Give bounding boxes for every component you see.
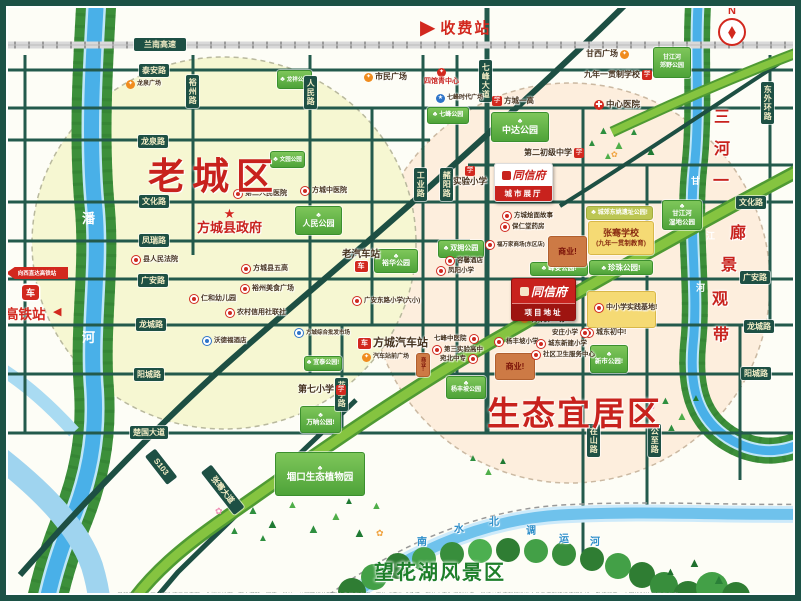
park-label: 甘江河 [672,210,692,218]
park-label: ♣ 城郊东姚遗址公园! [591,209,648,218]
poi-label: 方城烩面故事 [514,212,553,219]
park-label: 商业! [420,357,426,373]
corridor-label-char-1: 河 [714,142,730,158]
tree-icon: ♣ [601,265,608,272]
arrow-right-icon: ▶ [420,18,435,38]
poi-label: 市民广场 [375,73,407,82]
park-label: 湿地公园 [669,219,695,227]
road-label-dongwaihuan-rd: 东外环路 [761,82,774,124]
poi-label: 方城综合批发市场 [306,330,350,336]
park-yangfengpo-park: ♣杨丰坡公园 [446,376,486,399]
poi-label: 福万家商场(东区店) [497,242,545,248]
poi-yangfengpo-primary: 杨丰坡小学 [494,337,539,347]
bdot-icon [202,336,212,346]
plaza-icon: ✦ [362,353,371,362]
poi-diqi-primary: 学第七小学 [298,385,346,395]
poi-label: 安庄小学 [552,329,578,336]
park-shangye-1: 商业! [548,236,587,267]
poi-label: 凤阳小学 [448,267,474,274]
poi-label: 城东初中! [596,329,626,337]
park-label: 杨丰坡公园 [451,387,481,395]
park-label: 甘江河 [663,55,681,63]
dot-icon [436,266,446,276]
poi-zonghe-market: 方城综合批发市场 [294,328,350,338]
road-label-renmin-rd: 人民路 [304,76,317,109]
poi-label: 汽车站前广场 [373,354,409,361]
redplaza-icon: ✦ [437,68,446,77]
poi-label: 老汽车站 [342,250,380,260]
poi-label: 宛北中专 [440,355,466,362]
poi-renmin-court: 县人民法院 [131,255,178,265]
poi-chengdong-middle: 城东初中! [584,328,626,338]
canal-label-char-2: 北 [489,518,499,528]
poi-guangan-primary: 广安东路小学(六小) [352,296,420,306]
corridor-label-char-5: 观 [712,292,728,308]
tree-icon: ♣ [542,265,549,272]
tree-icon: ▲ [712,572,726,586]
corridor-label-char-0: 三 [714,110,730,126]
poi-label: 仁和幼儿园 [201,295,236,303]
dot-icon [536,339,546,349]
poi-label: 杨丰坡小学 [506,338,539,345]
corridor-label-char-6: 带 [713,328,729,344]
poi-label: 方城汽车站 [373,337,428,349]
poi-label: 方城一高 [504,97,534,105]
park-zhangqian-school: 张骞学校(九年一贯制教育) [588,221,654,255]
poi-label: 七峰时代广场 [447,95,483,102]
dot-icon [594,303,604,313]
tree-icon: ♣ [591,209,598,216]
tree-icon: ▲ [353,526,366,539]
poi-label: 县人民法院 [143,256,178,264]
dot-icon [131,255,141,265]
ganjiang-river-label-char-2: 河 [696,284,705,293]
plaza-icon: ✦ [620,50,629,59]
poi-bus-front-plaza: ✦汽车站前广场 [362,353,409,362]
hsr-station-label: 高铁站 [5,303,46,323]
tree-icon: ▲ [498,457,508,467]
tree-icon: ♣ [280,76,287,83]
poi-zhongxin-hospital: ✚中心医院 [594,100,640,110]
park-label: 人民公园 [303,219,335,229]
tree-icon: ▲ [344,497,354,507]
poi-fuwanjia-mall: 福万家商场(东区店) [485,240,545,250]
park-qifeng-park: ♣ 七峰公园 [427,107,469,124]
dot-icon [352,296,362,306]
park-label: 郊野公园 [660,63,684,71]
brand-seal-icon [502,171,511,180]
park-yuhua-park: ♣裕华公园 [374,249,418,273]
showroom-label: 城市展厅 [495,186,552,201]
poi-fangcheng-bus-station: 车方城汽车站 [358,337,428,349]
poi-label: 城东新建小学 [548,340,587,347]
tree-icon: ♣ [318,412,323,419]
park-label: 裕华公园 [382,260,410,269]
road-label-taian-rd: 泰安路 [139,64,169,77]
dot-icon [445,256,455,266]
park-label: 堌口生态植物园 [287,472,354,484]
project-site-marker: 同信府 项目地址 [511,278,576,321]
dot-icon [300,186,310,196]
school-icon: 学 [465,166,475,176]
ganjiang-river-label-char-0: 甘 [691,177,700,186]
poi-ganxi-plaza: ✦甘西广场 [586,50,629,59]
canal-label-char-1: 水 [454,525,464,535]
dot-icon [580,328,590,338]
tree-icon: ▲ [287,500,298,511]
tree-icon: ▲ [258,534,268,544]
flower-icon: ✿ [611,151,618,159]
park-zhongda-park: ♣中达公园 [491,112,549,142]
brand-name: 同信府 [513,167,546,183]
corridor-label-char-3: 廊 [730,226,746,242]
site-label: 项目地址 [512,304,575,320]
canal-label-char-0: 南 [417,538,427,548]
poi-label: 中小学实践基地! [606,304,657,312]
dot-icon [502,211,512,221]
eco-zone-title: 生态宜居区 [487,387,662,435]
poi-wanbei-zhongzhuan: 宛北中专 [440,354,478,364]
tree-icon: ▲ [629,128,639,138]
poi-label: 方城县五高 [253,265,288,273]
poi-label: 第三实验高中 [444,346,483,353]
poi-label: 七峰中医院 [434,335,467,342]
park-label: ♣ 珍珠公园! [601,263,640,272]
poi-anzhuang-primary: 安庄小学 [552,328,590,338]
poi-label: 第二初级中学 [524,149,572,158]
park-label: 中达公园 [502,125,538,136]
poi-label: 社区卫生服务中心 [543,351,595,358]
road-label-yangcheng-rd-l: 阳城路 [134,368,164,381]
road-label-fengrui-rd: 凤瑞路 [139,234,169,247]
road-label-guangan-rd-l: 广安路 [138,274,168,287]
road-label-s103: S103 [145,449,178,485]
poi-label: 四馆青中心 [424,78,459,86]
flower-icon: ✿ [215,507,223,516]
tree-icon: ▲ [665,567,676,578]
dot-icon [531,350,541,360]
road-label-wenhua-rd-r: 文化路 [736,196,766,209]
canal-label-char-3: 调 [526,527,536,537]
tree-icon: ▲ [691,394,701,404]
poi-longquan-plaza: ✦龙泉广场 [126,80,161,89]
park-yizhi-park: ♣ 城郊东姚遗址公园! [586,206,653,220]
park-zhenzhu-park: ♣ 珍珠公园! [589,260,653,275]
brand-row: 同信府 [512,279,575,304]
poi-wugao: 方城县五高 [241,264,288,274]
arrow-left-icon: ◀ [53,305,61,318]
poi-rural-credit: 农村信用社联社 [225,308,286,318]
park-yitai-park: ♣ 宜泰公园! [304,356,342,371]
road-label-guangan-rd-r: 广安路 [740,271,770,284]
blue-icon: ★ [436,94,445,103]
poi-label: 九年一贯制学校 [584,71,640,80]
dot-icon [469,334,479,344]
tree-icon: ▲ [483,467,494,478]
poi-fangcheng-yigao: 学方城一高 [492,96,534,106]
park-label: ♣ 宜泰公园! [307,359,340,368]
bus-icon: 车 [358,338,371,349]
poi-qifeng-times-plaza: ★七峰时代广场 [436,94,483,103]
school-icon: 学 [492,96,502,106]
poi-rongxin-hotel: 容馨酒店 [445,256,483,266]
tree-icon: ▲ [676,410,688,422]
canal-label-char-4: 运 [559,535,569,545]
road-label-lannan-expwy: 兰南高速 [134,38,186,51]
park-shangye-3: 商业! [416,353,430,377]
poi-label: 甘西广场 [586,50,618,59]
compass-ring-icon: ◆ [718,18,746,46]
park-renmin-park: ♣人民公园 [295,206,342,235]
poi-huimian-story: 方城烩面故事 [502,211,553,221]
corridor-label-char-4: 景 [721,258,737,274]
park-label: 张骞学校 [603,228,639,239]
poi-practice-base: 中小学实践基地! [594,303,657,313]
hsr-direction-banner: 向西直达高铁站 [6,267,68,279]
project-showroom-marker: 同信府 城市展厅 [494,163,553,202]
dot-icon [189,294,199,304]
poi-label: 方城县政府 [197,221,262,235]
poi-jiunian-school: 学九年一贯制学校 [584,70,652,80]
poi-fangcheng-zhongyi: 方城中医院 [300,186,347,196]
tree-icon: ▲ [468,454,478,464]
dot-icon [500,222,510,232]
park-label: (九年一贯制教育) [596,240,646,248]
park-ganjianghe-wetland-park: ♣甘江河湿地公园 [662,200,702,230]
tree-icon: ▲ [371,501,382,512]
tree-icon: ♣ [307,359,314,366]
brand-row: 同信府 [495,164,552,186]
poi-label: 实验小学 [453,177,487,186]
dot-icon [240,284,250,294]
road-label-chuguo-ave: 楚国大道 [130,426,168,439]
poi-label: 保仁堂药房 [512,223,545,230]
compass-needle-icon: ◆ [728,23,736,42]
brand-seal-icon [520,287,529,296]
school-icon: 学 [336,385,346,395]
compass: N ◆ [714,5,750,46]
toll-station-callout: ▶ 收费站 [420,17,491,38]
brand-name: 同信府 [531,283,567,300]
park-xinshi-park: ♣新市公园! [590,345,628,373]
poi-label: 第七小学 [298,385,334,395]
scenic-area-title: 望花湖风景区 [374,556,506,585]
poi-baorentang: 保仁堂药房 [500,222,545,232]
pan-river-label-char-0: 潘 [82,212,95,225]
tree-icon: ♣ [318,465,323,472]
dot-icon [494,337,504,347]
tree-icon: ▲ [598,126,609,137]
poi-gov: ★方城县政府 [197,207,262,235]
park-label: ♣ 七峰公园 [433,111,464,120]
tree-icon: ▲ [666,423,677,434]
tree-icon: ♣ [433,111,440,118]
road-label-yuzhou-rd: 裕州路 [186,75,199,108]
tree-icon: ▲ [688,556,701,569]
poi-wodefu-hotel: 沃德福酒店 [202,336,247,346]
school-icon: 学 [574,148,584,158]
hsr-banner-label: 向西直达高铁站 [18,269,57,277]
poi-label: 农村信用社联社 [237,309,286,317]
old-town-zone-title: 老城区 [148,146,280,200]
tree-icon: ♣ [444,245,451,252]
road-label-longcheng-rd-r: 龙城路 [744,320,774,333]
plaza-icon: ✦ [126,80,135,89]
canal-label-char-5: 河 [590,538,600,548]
poi-old-bus-station: 车老汽车站 [342,250,380,272]
tree-icon: ♣ [518,118,523,125]
poi-siguanqing-center: ✦四馆青中心 [424,68,459,86]
poi-dier-chuji-middle: 学第二初级中学 [524,148,584,158]
poi-yuzhou-food: 裕州美食广场 [240,284,294,294]
park-label: 商业! [506,362,525,372]
star-icon: ★ [224,207,236,220]
tree-icon: ▲ [247,504,259,516]
poi-label: 龙泉广场 [137,81,161,88]
train-station-icon: 车 [22,285,39,300]
tree-icon: ▲ [330,510,342,522]
poi-label: 裕州美食广场 [252,285,294,293]
compass-north-label: N [714,5,750,17]
road-label-gongye-rd: 工业路 [414,168,427,201]
dot-icon [241,264,251,274]
bus-icon: 车 [355,261,368,272]
dot-icon [468,354,478,364]
poi-label: 方城中医院 [312,187,347,195]
road-label-zheyang-rd: 赭阳路 [440,168,453,201]
park-label: 新市公园! [595,358,623,366]
poi-label: 容馨酒店 [457,257,483,264]
corridor-label-char-2: 一 [713,174,729,190]
tree-icon: ▲ [266,517,279,530]
poi-chengdong-xinjian-primary: 城东新建小学 [536,339,587,349]
flower-icon: ✿ [376,529,384,538]
poi-qifeng-zhongyi: 七峰中医院 [434,334,479,344]
dot-icon [225,308,235,318]
poi-label: 沃德福酒店 [214,337,247,344]
tree-icon: ▲ [587,139,597,149]
road-label-yangcheng-rd-r: 阳城路 [741,367,771,380]
poi-shequ-weisheng-center: 社区卫生服务中心 [531,350,595,360]
bdot-icon [294,328,304,338]
poi-renhe-kindergarten: 仁和幼儿园 [189,294,236,304]
park-label: ♣ 双拥公园 [444,245,479,254]
park-ganjianghe-country-park: 甘江河郊野公园 [653,47,691,78]
poi-shiyan-primary: 学实验小学 [453,166,487,186]
road-label-longcheng-rd-l: 龙城路 [136,318,166,331]
tree-icon: ▲ [229,526,240,537]
tree-icon: ▲ [307,522,320,535]
poi-label: 广安东路小学(六小) [364,297,420,304]
park-label: 商业! [558,247,577,257]
tree-icon: ▲ [645,145,657,157]
park-label: 万晌公园! [306,419,334,427]
poi-fengyang-primary: 凤阳小学 [436,266,474,276]
ganjiang-river-label-char-1: 江 [706,232,715,241]
park-shangye-2: 商业! [495,353,535,380]
pan-river-label-char-1: 河 [82,331,95,344]
park-gukou-botanical: ♣堌口生态植物园 [275,452,365,496]
map-disclaimer: 温馨提示：本区位图为项目示意图，非标准地图，图中道路、河流、学校、公园等相关配套… [10,591,791,599]
toll-station-label: 收费站 [440,17,491,38]
hosp-icon: ✚ [594,100,604,110]
tree-icon: ♣ [316,212,321,219]
plaza-icon: ✦ [364,73,373,82]
poi-shimin-plaza: ✦市民广场 [364,73,407,82]
poi-label: 中心医院 [606,100,640,109]
location-map: 兰南高速泰安路龙泉路文化路凤瑞路广安路龙城路阳城路楚国大道文化路广安路龙城路阳城… [0,0,801,601]
school-icon: 学 [642,70,652,80]
dot-icon [485,240,495,250]
